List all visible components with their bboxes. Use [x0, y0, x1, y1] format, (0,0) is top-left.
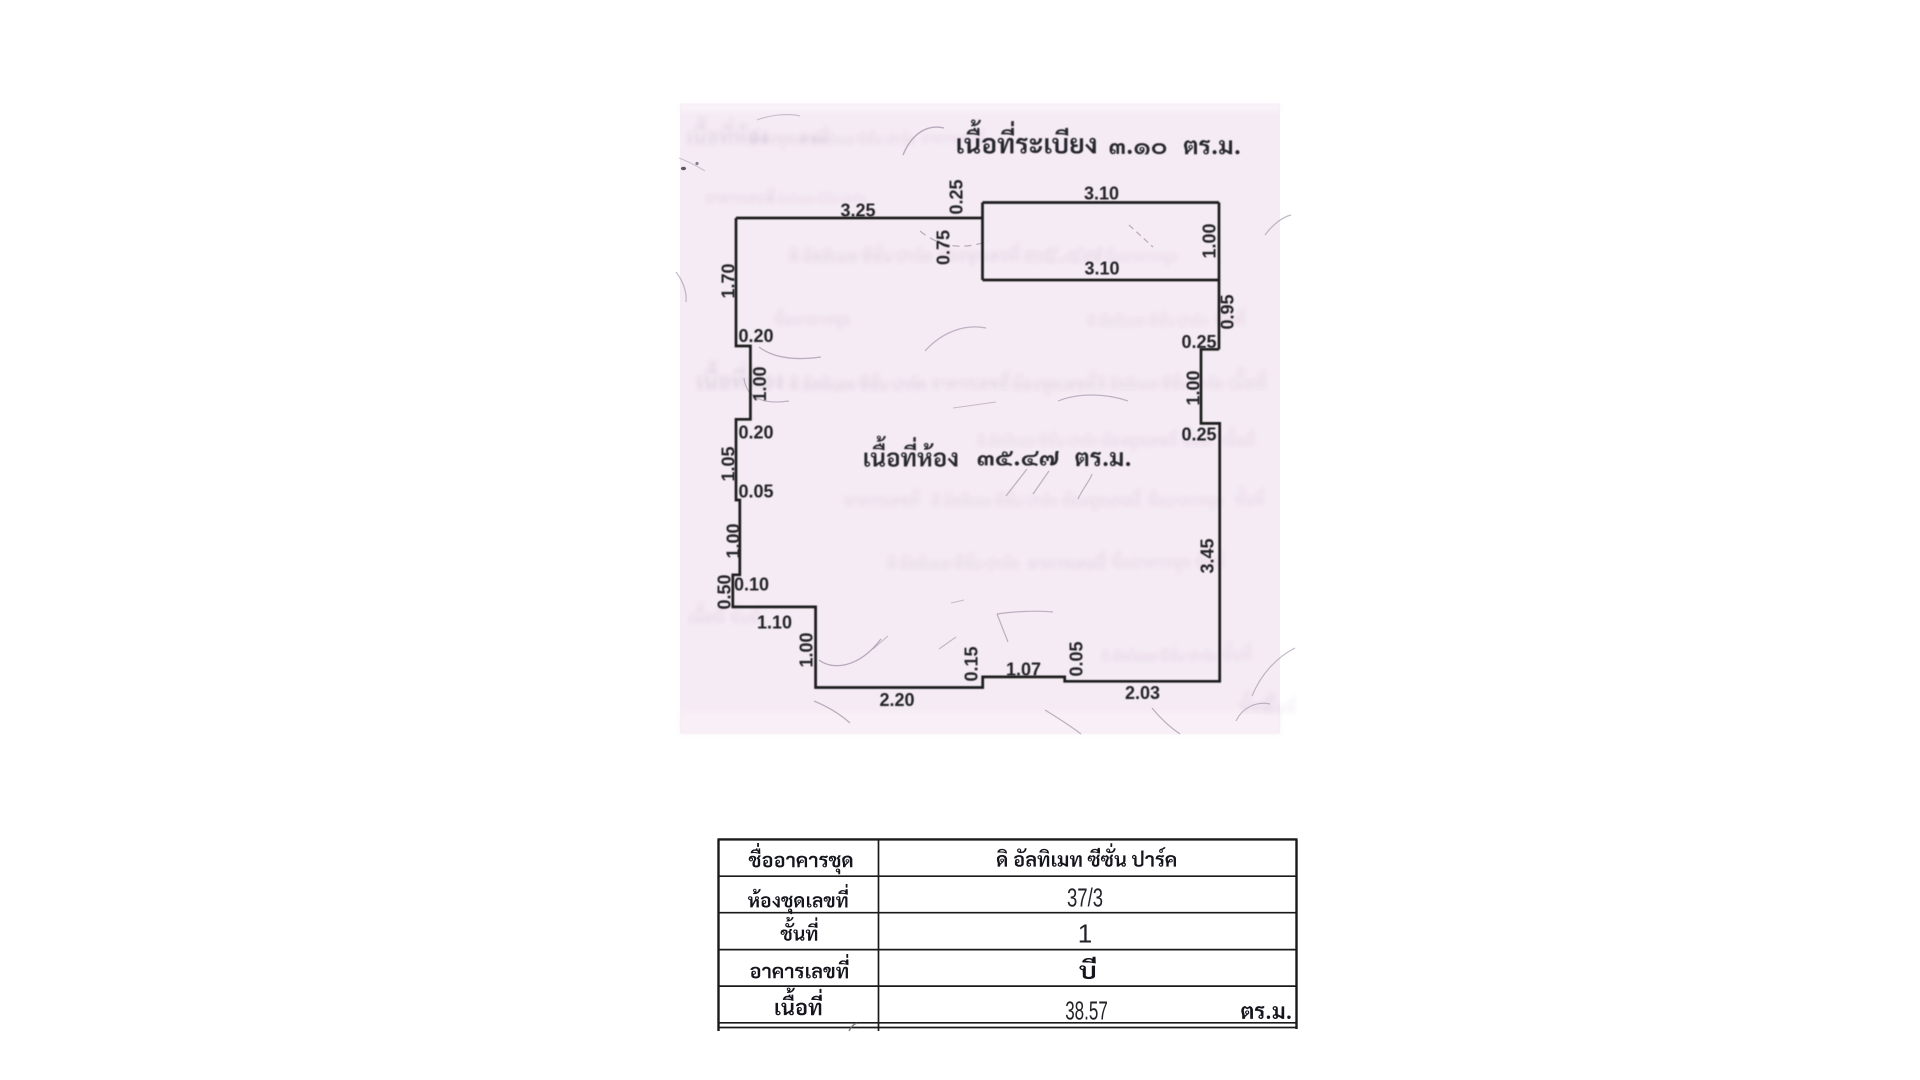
svg-text:0.05: 0.05 — [1067, 641, 1087, 676]
svg-text:0.25: 0.25 — [1181, 332, 1216, 352]
svg-text:0.75: 0.75 — [934, 230, 954, 265]
svg-text:0.20: 0.20 — [738, 423, 773, 443]
svg-text:1.00: 1.00 — [1200, 223, 1220, 258]
svg-text:1.70: 1.70 — [719, 263, 739, 298]
svg-text:3.10: 3.10 — [1084, 259, 1119, 279]
svg-text:0.95: 0.95 — [1218, 294, 1238, 329]
svg-text:0.05: 0.05 — [738, 482, 773, 502]
svg-text:0.15: 0.15 — [962, 646, 982, 681]
svg-text:1.00: 1.00 — [797, 632, 817, 667]
svg-text:1.10: 1.10 — [757, 613, 792, 633]
svg-text:1.07: 1.07 — [1006, 660, 1041, 680]
svg-text:3.25: 3.25 — [840, 201, 875, 221]
svg-text:0.25: 0.25 — [1181, 425, 1216, 445]
svg-text:1.00: 1.00 — [750, 366, 770, 401]
svg-text:2.03: 2.03 — [1125, 683, 1160, 703]
svg-text:1.00: 1.00 — [1184, 370, 1204, 405]
svg-text:0.25: 0.25 — [947, 179, 967, 214]
svg-text:3.10: 3.10 — [1084, 184, 1119, 204]
svg-text:0.50: 0.50 — [715, 574, 735, 609]
svg-text:2.20: 2.20 — [879, 690, 914, 710]
svg-text:37/3: 37/3 — [1067, 883, 1103, 913]
svg-text:0.10: 0.10 — [734, 575, 769, 595]
svg-text:1: 1 — [1078, 919, 1092, 949]
svg-text:3.45: 3.45 — [1198, 538, 1218, 573]
svg-text:38.57: 38.57 — [1065, 996, 1108, 1026]
svg-text:1.00: 1.00 — [724, 523, 744, 558]
svg-text:1.05: 1.05 — [719, 446, 739, 481]
svg-text:0.20: 0.20 — [738, 326, 773, 346]
